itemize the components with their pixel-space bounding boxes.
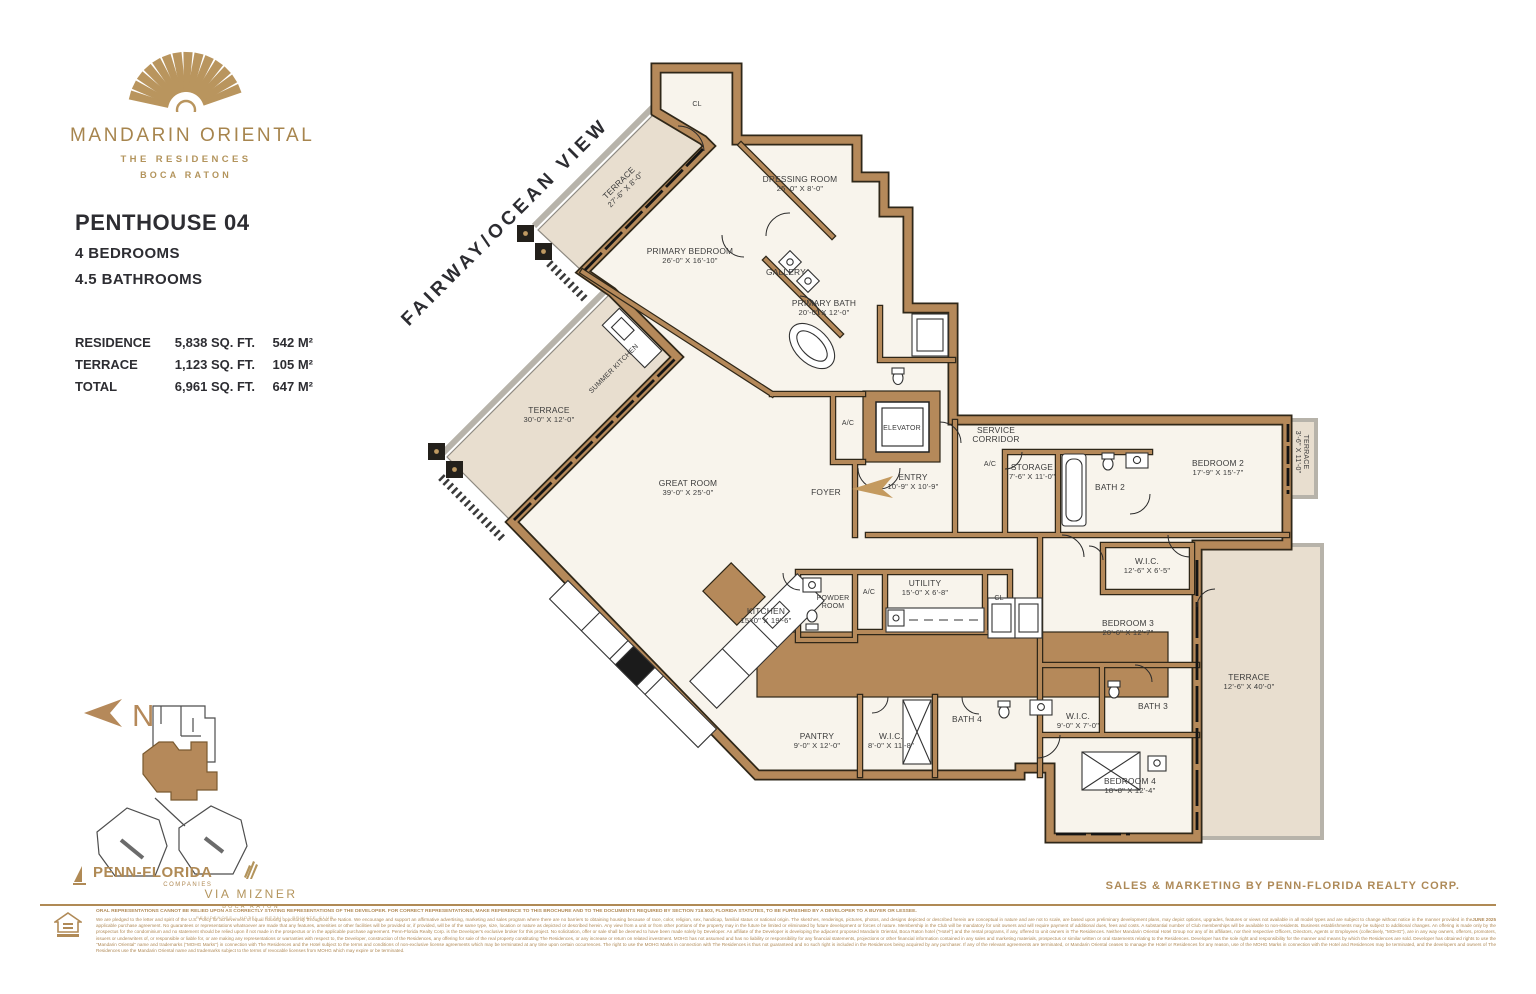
footer-divider: [40, 904, 1496, 906]
via-mizner-name: VIA MIZNER: [196, 887, 306, 901]
terrace-right: [1197, 545, 1322, 838]
equal-housing-icon: [54, 912, 82, 943]
unit-bathrooms: 4.5 BATHROOMS: [75, 271, 250, 288]
brand-block: MANDARIN ORIENTAL THE RESIDENCES BOCA RA…: [70, 40, 302, 180]
legal-disclaimer: ORAL REPRESENTATIONS CANNOT BE RELIED UP…: [96, 909, 1496, 955]
room-label-terrace-right: TERRACE12'-6" X 40'-0": [1224, 672, 1275, 691]
keyplan: [97, 706, 247, 876]
room-label-elevator: ELEVATOR: [883, 425, 921, 432]
area-label: TOTAL: [75, 379, 155, 394]
room-label-service-corridor: SERVICECORRIDOR: [972, 425, 1019, 444]
unit-summary: PENTHOUSE 04 4 BEDROOMS 4.5 BATHROOMS: [75, 210, 250, 288]
room-label-ac-1: A/C: [842, 420, 854, 427]
room-label-bath3: BATH 3: [1138, 701, 1168, 711]
room-label-terrace-lower: TERRACE30'-0" X 12'-0": [524, 405, 575, 424]
room-label-gallery: GALLERY: [766, 267, 806, 277]
area-sqm: 647 M²: [255, 379, 313, 394]
area-sqft: 1,123 SQ. FT.: [155, 357, 255, 372]
room-label-bath4: BATH 4: [952, 714, 982, 724]
room-label-foyer: FOYER: [811, 487, 841, 497]
unit-title: PENTHOUSE 04: [75, 210, 250, 236]
area-row-terrace: TERRACE 1,123 SQ. FT. 105 M²: [75, 353, 313, 375]
room-label-great-room: GREAT ROOM39'-0" X 25'-0": [659, 478, 717, 497]
area-sqm: 542 M²: [255, 335, 313, 350]
area-row-residence: RESIDENCE 5,838 SQ. FT. 542 M²: [75, 331, 313, 353]
room-label-storage: STORAGE7'-6" X 11'-0": [1009, 462, 1055, 481]
north-arrow-icon: N: [84, 698, 155, 733]
unit-bedrooms: 4 BEDROOMS: [75, 245, 250, 262]
room-label-cl: CL: [692, 101, 701, 108]
brand-sub-city: BOCA RATON: [70, 170, 302, 180]
room-label-bedroom3: BEDROOM 320'-6" X 12'-7": [1102, 618, 1154, 637]
area-table: RESIDENCE 5,838 SQ. FT. 542 M² TERRACE 1…: [75, 331, 313, 397]
penn-florida-name: PENN-FLORIDA: [93, 864, 212, 881]
room-label-primary-bath: PRIMARY BATH20'-0" X 12'-0": [792, 298, 856, 317]
brand-sub-residences: THE RESIDENCES: [70, 154, 302, 165]
disclaimer-text: We are pledged to the letter and spirit …: [96, 917, 1496, 954]
area-row-total: TOTAL 6,961 SQ. FT. 647 M²: [75, 375, 313, 397]
area-sqft: 5,838 SQ. FT.: [155, 335, 255, 350]
fan-logo-icon: [91, 40, 281, 112]
brochure-page: CL TERRACE27'-6" X 8'-0" DRESSING ROOM25…: [0, 0, 1536, 994]
area-label: RESIDENCE: [75, 335, 155, 350]
room-label-pantry: PANTRY9'-0" X 12'-0": [794, 731, 841, 750]
penn-florida-sub: COMPANIES: [88, 882, 212, 888]
room-label-bedroom4: BEDROOM 418'-8" X 12'-4": [1104, 776, 1156, 795]
wc-toilet: [892, 368, 904, 385]
disclaimer-heading: ORAL REPRESENTATIONS CANNOT BE RELIED UP…: [96, 909, 1496, 916]
keyplan-unit-highlight: [143, 742, 217, 800]
room-label-terrace-bump: TERRACE3'-6" X 11'-0": [1294, 431, 1309, 474]
sales-marketing-line: SALES & MARKETING BY PENN-FLORIDA REALTY…: [1106, 880, 1460, 892]
penn-florida-logo: PENN-FLORIDA COMPANIES: [72, 864, 212, 888]
room-label-ac-2: A/C: [984, 461, 996, 468]
room-label-bath2: BATH 2: [1095, 482, 1125, 492]
disclaimer-body: JUNE 2025 We are pledged to the letter a…: [96, 917, 1496, 955]
room-label-bedroom2: BEDROOM 217'-9" X 15'-7": [1192, 458, 1244, 477]
room-label-ac-3: A/C: [863, 589, 875, 596]
room-label-kitchen: KITCHEN15'-0" X 19'-6": [741, 606, 792, 625]
north-letter: N: [132, 698, 155, 733]
sail-icon: [72, 864, 88, 886]
area-sqm: 105 M²: [255, 357, 313, 372]
leaf-icon: [243, 860, 259, 880]
room-label-cl2: CL: [994, 595, 1003, 602]
brand-name: MANDARIN ORIENTAL: [70, 125, 302, 147]
area-sqft: 6,961 SQ. FT.: [155, 379, 255, 394]
area-label: TERRACE: [75, 357, 155, 372]
